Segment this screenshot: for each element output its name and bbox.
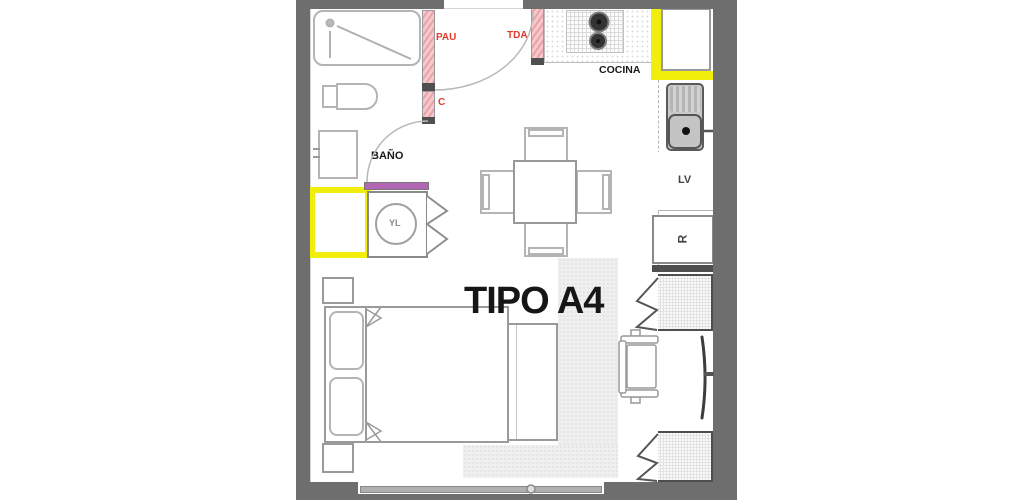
bathroom-sink <box>318 130 358 179</box>
divider-wall <box>652 265 714 272</box>
balcony-window <box>360 486 602 493</box>
corner-cabinet <box>661 8 711 71</box>
pau-label: PAU <box>436 32 456 43</box>
chair-back <box>602 174 610 210</box>
nightstand-top <box>322 277 354 304</box>
right-wall <box>713 0 737 500</box>
nightstand-bottom <box>322 443 354 473</box>
living-floor-texture-band <box>463 445 618 478</box>
pau-wall-strip <box>422 10 435 84</box>
duct-box-yellow <box>309 187 371 258</box>
top-wall-left <box>296 0 444 9</box>
tda-label: TDA <box>507 30 528 41</box>
wall-cap <box>422 83 435 91</box>
bench-dresser <box>507 323 558 441</box>
sink-basin <box>668 114 702 149</box>
pillow <box>329 311 364 370</box>
kitchen-label: COCINA <box>599 64 640 76</box>
pillow <box>329 377 364 436</box>
yellow-wall-horizontal <box>651 71 714 80</box>
top-wall-right <box>523 0 737 9</box>
chair-back <box>528 247 564 255</box>
bathroom-label: BAÑO <box>371 150 403 162</box>
left-wall <box>296 0 310 497</box>
yellow-wall-vertical <box>651 3 661 80</box>
dishwasher-label: LV <box>678 174 691 186</box>
purple-wall-strip <box>364 182 429 190</box>
plan-title: TIPO A4 <box>464 280 603 323</box>
wall-cap <box>422 117 435 124</box>
shower-tray <box>313 10 421 66</box>
toilet-bowl <box>336 83 378 110</box>
fridge-label: R <box>675 235 689 244</box>
closet-bottom-panel <box>658 431 713 482</box>
bench-inner-line <box>516 325 517 439</box>
sink-drainboard <box>670 86 701 112</box>
entry-door-leaf <box>531 5 544 59</box>
floor-plan: BAÑO YL PAU C TDA COCINA LV R <box>0 0 1024 500</box>
wall-cap <box>531 58 544 65</box>
bed-mattress <box>365 306 509 443</box>
dining-table <box>513 160 577 224</box>
c-wall-strip <box>422 91 435 118</box>
chair-back <box>482 174 490 210</box>
c-label: C <box>438 97 445 108</box>
closet-top-panel <box>658 274 713 331</box>
washer-label: YL <box>389 218 401 228</box>
chair-back <box>528 129 564 137</box>
stove <box>566 10 624 53</box>
